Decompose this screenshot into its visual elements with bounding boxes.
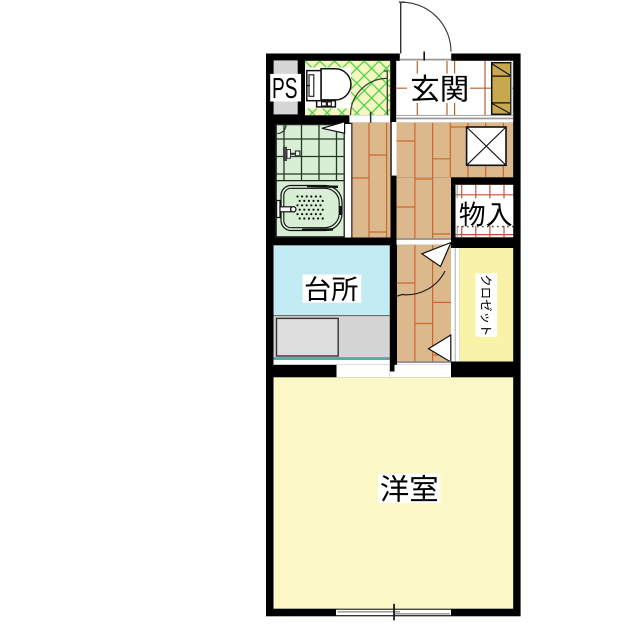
svg-text:PS: PS — [272, 73, 298, 105]
